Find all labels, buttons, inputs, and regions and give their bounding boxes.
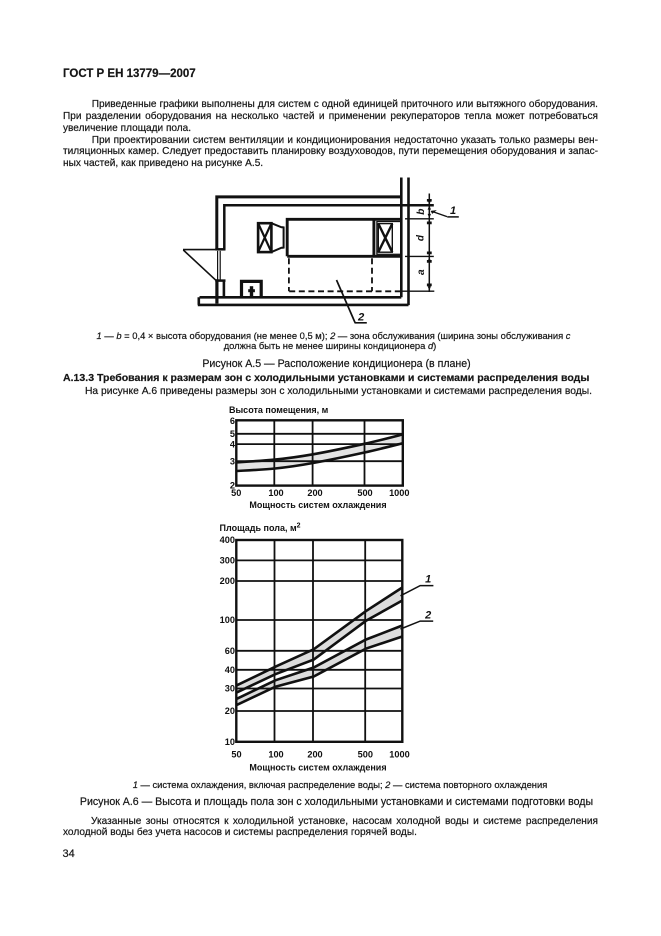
- svg-text:Площадь пола, м2: Площадь пола, м2: [220, 523, 301, 534]
- svg-text:400: 400: [220, 535, 235, 545]
- svg-text:500: 500: [358, 750, 373, 760]
- svg-text:30: 30: [225, 684, 235, 694]
- svg-text:1000: 1000: [389, 750, 409, 760]
- svg-text:40: 40: [225, 665, 235, 675]
- svg-text:50: 50: [231, 750, 241, 760]
- svg-text:200: 200: [220, 576, 235, 586]
- svg-text:Мощность систем охлаждения: Мощность систем охлаждения: [249, 762, 386, 772]
- svg-text:100: 100: [220, 615, 235, 625]
- svg-text:2: 2: [424, 609, 431, 621]
- svg-text:200: 200: [307, 750, 322, 760]
- svg-text:100: 100: [268, 750, 283, 760]
- svg-text:300: 300: [220, 556, 235, 566]
- svg-text:1: 1: [425, 573, 431, 585]
- svg-text:60: 60: [225, 646, 235, 656]
- svg-text:20: 20: [225, 706, 235, 716]
- svg-text:10: 10: [225, 737, 235, 747]
